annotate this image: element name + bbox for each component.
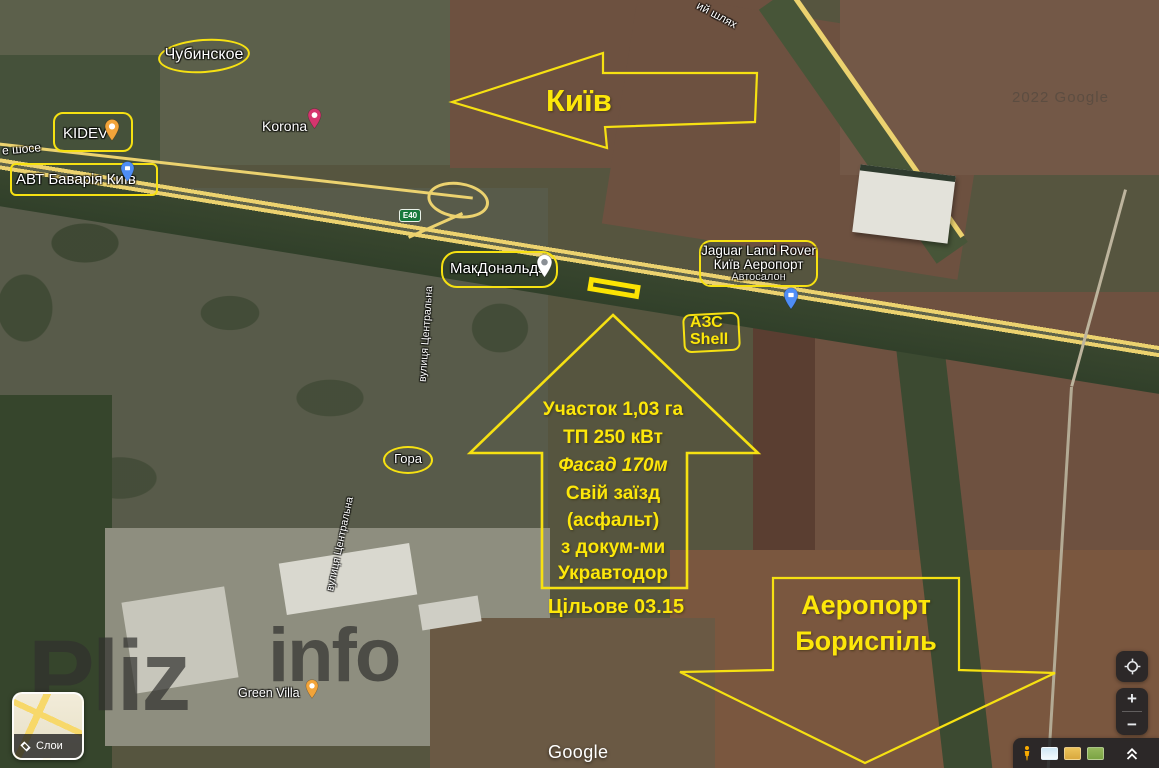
airport-label-line1: Аеропорт bbox=[770, 590, 962, 621]
e40-route-shield: E40 bbox=[399, 209, 421, 222]
poi-label-avt-bavaria[interactable]: АВТ Баварія Київ bbox=[16, 171, 136, 188]
plot-zoning-label: Цільове 03.15 bbox=[491, 596, 741, 619]
my-location-icon bbox=[1123, 657, 1142, 676]
watermark-brand-info: info bbox=[268, 626, 399, 687]
jaguar-shopping-pin-icon[interactable] bbox=[783, 286, 799, 311]
zoom-out-button[interactable]: − bbox=[1127, 716, 1137, 733]
poi-label-jaguar-2[interactable]: Київ Аеропорт bbox=[699, 257, 818, 272]
poi-label-mcdonalds[interactable]: МакДональдз bbox=[450, 260, 545, 277]
layers-strip: Слои bbox=[14, 734, 82, 758]
layers-label: Слои bbox=[36, 740, 63, 752]
mcdonalds-restaurant-pin-icon[interactable] bbox=[536, 253, 553, 279]
plot-text-entrance: Свій заїзд bbox=[488, 483, 738, 505]
airport-label-line2: Бориспіль bbox=[770, 626, 962, 657]
imagery-toolbar bbox=[1013, 738, 1159, 768]
plot-text-facade: Фасад 170м bbox=[488, 455, 738, 477]
airport-field-bottom-right bbox=[670, 550, 1159, 768]
zoom-in-button[interactable]: + bbox=[1127, 690, 1137, 707]
map-style-thumbnail-satellite[interactable] bbox=[1087, 747, 1104, 760]
plot-text-documents: з докум-ми bbox=[488, 537, 738, 559]
layers-button[interactable]: Слои bbox=[12, 692, 84, 760]
zoom-divider bbox=[1122, 711, 1142, 712]
poi-label-azs[interactable]: АЗС bbox=[690, 314, 723, 332]
poi-label-jaguar-3[interactable]: Автосалон bbox=[699, 271, 818, 283]
collapse-chevron-icon[interactable] bbox=[1124, 744, 1140, 762]
map-style-thumbnail-default[interactable] bbox=[1041, 747, 1058, 760]
my-location-button[interactable] bbox=[1116, 651, 1148, 682]
kidev-restaurant-pin-icon[interactable] bbox=[104, 118, 120, 142]
layers-icon bbox=[20, 741, 30, 751]
kyiv-arrow-label: Київ bbox=[546, 83, 612, 119]
warehouse-building bbox=[852, 164, 956, 243]
avt-bavaria-shopping-pin-icon[interactable] bbox=[120, 160, 135, 183]
imagery-credit: 2022 Google bbox=[1012, 89, 1109, 106]
plot-text-power: ТП 250 кВт bbox=[488, 427, 738, 449]
plot-text-area: Участок 1,03 га bbox=[488, 399, 738, 421]
poi-label-chubynske[interactable]: Чубинское bbox=[158, 46, 250, 64]
satellite-map[interactable]: е шосе ий шлях вулиця Центральна вулиця … bbox=[0, 0, 1159, 768]
poi-label-hora[interactable]: Гора bbox=[383, 451, 433, 466]
poi-label-shell[interactable]: Shell bbox=[690, 331, 728, 349]
google-logo[interactable]: Google bbox=[548, 742, 608, 763]
poi-label-kidev[interactable]: KIDEV bbox=[63, 125, 108, 142]
plot-text-asphalt: (асфальт) bbox=[488, 510, 738, 532]
korona-shopping-pin-icon[interactable] bbox=[307, 107, 322, 130]
plot-text-ukravtodor: Укравтодор bbox=[488, 563, 738, 585]
map-style-thumbnail-terrain[interactable] bbox=[1064, 747, 1081, 760]
pegman-icon[interactable] bbox=[1019, 743, 1035, 763]
poi-label-korona[interactable]: Korona bbox=[262, 118, 307, 134]
poi-label-jaguar-1[interactable]: Jaguar Land Rover bbox=[699, 243, 818, 258]
zoom-control: + − bbox=[1116, 688, 1148, 735]
